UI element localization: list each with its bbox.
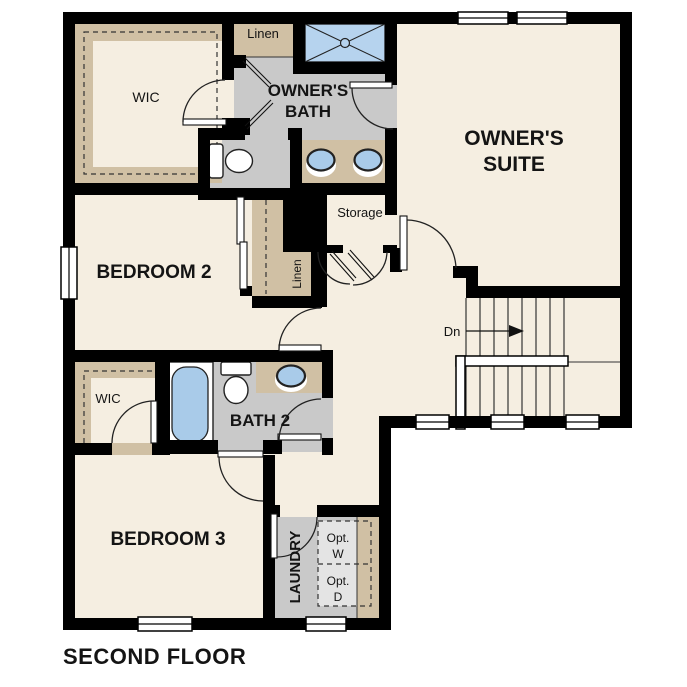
wall [293, 62, 397, 74]
owners-bath-label-line2: BATH [285, 102, 331, 121]
toilet-tank [221, 362, 251, 375]
wall [322, 350, 333, 398]
owners-bath-sink [355, 150, 382, 171]
bedroom2-label: BEDROOM 2 [96, 262, 211, 283]
wall [385, 12, 397, 85]
wall [322, 438, 333, 455]
page-title: SECOND FLOOR [63, 644, 246, 669]
stairs-down-label: Dn [444, 324, 461, 339]
wall [466, 286, 620, 298]
closet-slider-door [237, 197, 244, 244]
wic-upper-label: WIC [132, 89, 159, 105]
closet-slider-door [240, 242, 247, 289]
wic-lower-door-leaf [151, 401, 157, 443]
wall [385, 128, 397, 215]
bedroom2-door-leaf [279, 345, 321, 351]
shower [305, 24, 385, 62]
owners-suite-label-line1: OWNER'S [464, 127, 564, 150]
toilet-tank [209, 144, 223, 178]
bath2-label: BATH 2 [230, 411, 290, 430]
optional-dryer-label-line2: D [334, 590, 343, 604]
owners-bath-label-line1: OWNER'S [268, 81, 349, 100]
wic-lower-floor [91, 378, 155, 443]
wall [290, 183, 397, 195]
stair-railing [456, 356, 568, 366]
bath2-sink [277, 366, 305, 387]
laundry-label: LAUNDRY [287, 531, 304, 604]
bedroom2-closet [252, 192, 283, 296]
wall [63, 443, 112, 455]
shower-drain-icon [341, 39, 350, 48]
linen-hall-label: Linen [290, 259, 304, 288]
owners-suite-label-line2: SUITE [483, 153, 545, 176]
wall [222, 12, 234, 80]
linen-upper-label: Linen [247, 26, 279, 41]
toilet-bowl [226, 150, 253, 173]
wall [317, 505, 391, 517]
wic-lower-label: WIC [95, 391, 120, 406]
owners-bath-door-leaf [350, 82, 392, 88]
owners-bath-sink [308, 150, 335, 171]
optional-dryer-label-line1: Opt. [327, 574, 350, 588]
storage-label: Storage [337, 205, 383, 220]
wall [620, 12, 632, 428]
bedroom3-label: BEDROOM 3 [110, 529, 225, 550]
wall [63, 350, 333, 362]
wall [263, 440, 282, 454]
owners-suite-door-leaf [400, 216, 407, 270]
second-floor-plan: WIC Linen OWNER'S BATH OWNER'S SUITE BED… [0, 0, 687, 687]
wall [252, 296, 322, 308]
wall [63, 183, 205, 195]
wic-upper-door-leaf [183, 119, 226, 125]
wall [63, 12, 75, 630]
bath2-tub [172, 367, 208, 442]
wall [288, 128, 302, 140]
optional-washer-label-line2: W [332, 547, 344, 561]
bedroom3-door-leaf [218, 451, 263, 457]
floor-plan-page: WIC Linen OWNER'S BATH OWNER'S SUITE BED… [0, 0, 687, 687]
toilet-bowl [224, 377, 248, 404]
laundry-counter [357, 517, 379, 618]
optional-washer-label-line1: Opt. [327, 531, 350, 545]
laundry-door-leaf [271, 514, 277, 558]
bath2-door-leaf [278, 434, 321, 440]
wall [379, 416, 391, 630]
